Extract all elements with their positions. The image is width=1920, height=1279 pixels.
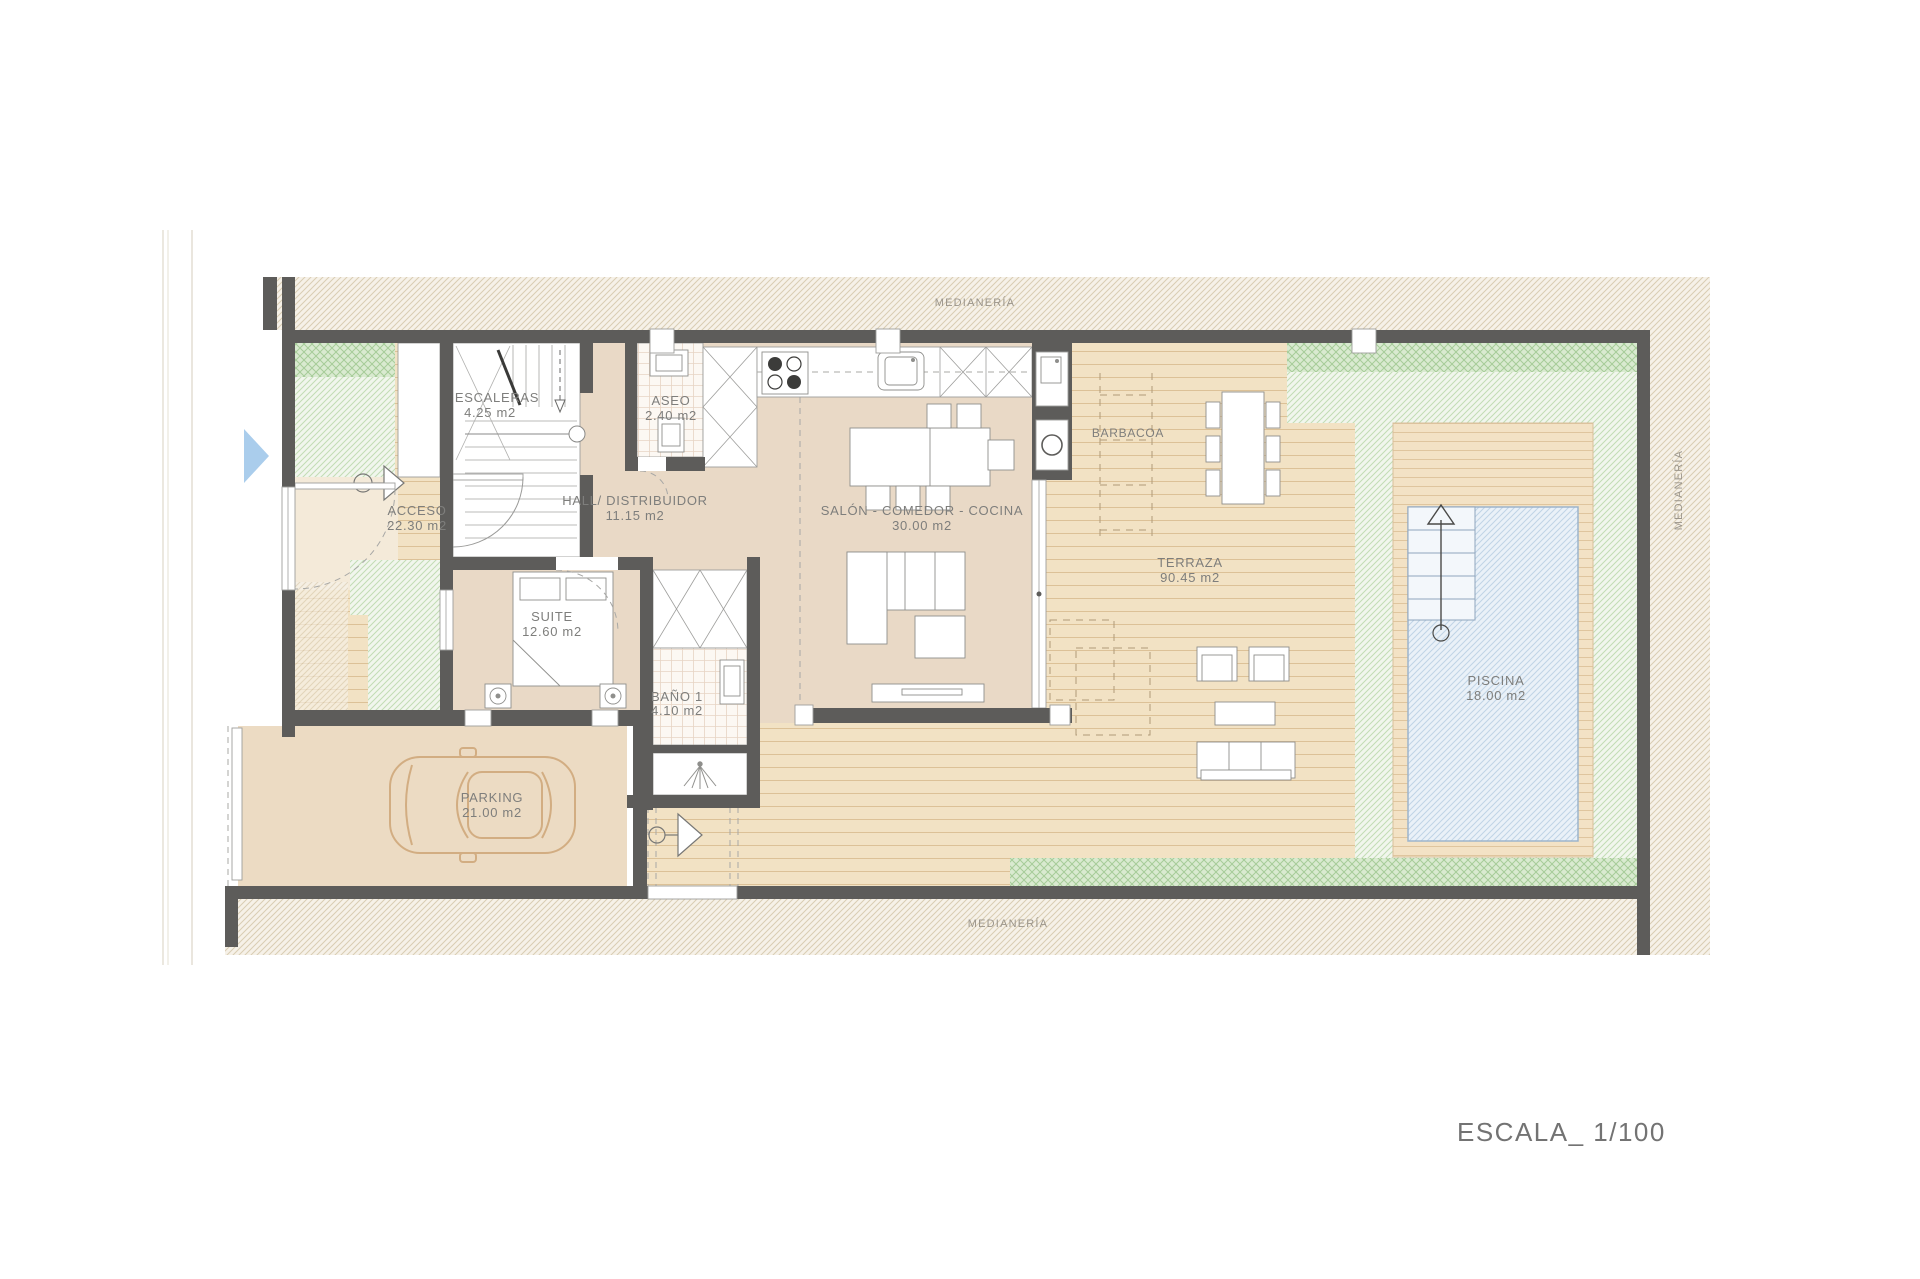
wardrobe: [653, 570, 747, 648]
suite-window: [440, 590, 453, 650]
column-post: [876, 329, 900, 353]
medianeria-label-top: MEDIANERÍA: [935, 296, 1015, 309]
escaleras-label: ESCALERAS: [455, 390, 539, 405]
medianeria-label-bottom: MEDIANERÍA: [968, 917, 1048, 930]
parking-area: [228, 726, 627, 886]
hedge-strip-bottom: [1010, 858, 1637, 886]
salon-slider-door: [1032, 480, 1046, 708]
blue-arrow-marker: [244, 429, 269, 483]
stove-icon: [762, 352, 808, 394]
terrace-dining-set: [1206, 392, 1280, 504]
escaleras-room: [453, 343, 585, 557]
kitchen-tall-cabinets: [703, 347, 757, 467]
suite-label: SUITE: [531, 609, 573, 624]
acceso-label: ACCESO: [387, 503, 446, 518]
bath-block: [653, 570, 747, 795]
medianeria-label-right: MEDIANERÍA: [1672, 450, 1685, 530]
bano1-label: BAÑO 1: [651, 689, 703, 704]
medianeria-strip-right: [1650, 277, 1710, 955]
garden-patch: [368, 615, 440, 726]
salon-label: SALÓN - COMEDOR - COCINA: [821, 503, 1023, 518]
window-post: [592, 710, 618, 726]
hedge-strip-top: [1287, 343, 1637, 372]
parking-label: PARKING: [461, 790, 523, 805]
column-post: [1050, 705, 1070, 725]
aseo-door-opening: [638, 457, 666, 471]
floor-plan-drawing: ESCALERAS 4.25 m2 ASEO 2.40 m2 ACCESO 22…: [0, 0, 1920, 1279]
suite-door-opening: [556, 557, 618, 570]
walkway: [398, 343, 440, 477]
coffee-table: [915, 616, 965, 658]
gravel-patch: [292, 582, 348, 710]
aseo-area: 2.40 m2: [645, 408, 697, 423]
scale-label: ESCALA_ 1/100: [1457, 1117, 1666, 1147]
acceso-area: 22.30 m2: [387, 518, 447, 533]
escaleras-area: 4.25 m2: [464, 405, 516, 420]
barbacoa-block: [1032, 330, 1072, 480]
hall-door-leaf: [453, 474, 523, 480]
garage-opening: [232, 728, 242, 880]
piscina-area: 18.00 m2: [1466, 688, 1526, 703]
column-post: [1352, 329, 1376, 353]
column-post: [650, 329, 674, 353]
column-post: [795, 705, 813, 725]
hall-area: 11.15 m2: [606, 508, 665, 523]
salon-area: 30.00 m2: [892, 518, 952, 533]
bano1-area: 4.10 m2: [651, 703, 703, 718]
kitchen-counter: [757, 347, 1032, 397]
aseo-label: ASEO: [652, 393, 691, 408]
suite-area: 12.60 m2: [522, 624, 582, 639]
garden-patch: [350, 560, 440, 615]
garden-patch: [295, 343, 395, 377]
terraza-area: 90.45 m2: [1160, 570, 1220, 585]
piscina-label: PISCINA: [1468, 673, 1525, 688]
window-post: [465, 710, 491, 726]
garden-corner: [1287, 372, 1355, 423]
garden-patch: [295, 377, 395, 480]
barbacoa-label: BARBACOA: [1092, 426, 1164, 440]
floor-plan-page: ESCALERAS 4.25 m2 ASEO 2.40 m2 ACCESO 22…: [0, 0, 1920, 1279]
parking-floor: [238, 726, 627, 886]
terraza-label: TERRAZA: [1157, 555, 1223, 570]
medianeria-strip-bottom: [225, 899, 1650, 955]
hall-label: HALL/ DISTRIBUIDOR: [562, 493, 708, 508]
gate-opening: [648, 886, 737, 899]
entry-door-leaf: [295, 483, 395, 489]
parking-area: 21.00 m2: [462, 805, 522, 820]
entry-door-opening: [282, 487, 295, 590]
page-edge-lines: [163, 230, 192, 965]
